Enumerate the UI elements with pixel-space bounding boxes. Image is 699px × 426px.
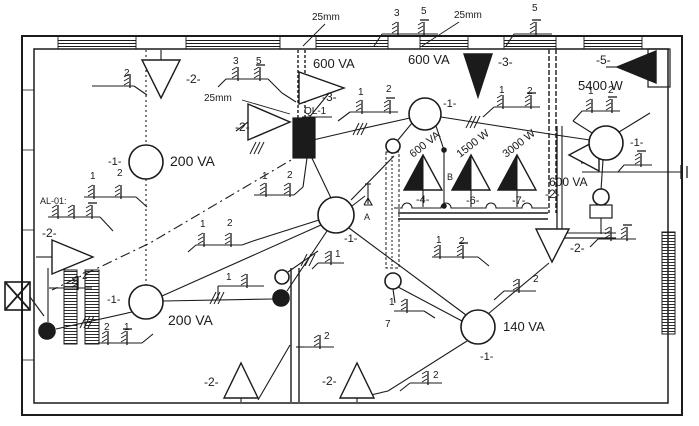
switch-hash <box>356 100 361 103</box>
switch-hash <box>384 100 389 103</box>
electrical-plan-page: 25mm3525mm5600 VA600 VA-3--3-QL-125mm-2-… <box>0 0 699 426</box>
switch-hash <box>241 282 246 285</box>
switch-hash <box>586 103 591 106</box>
switch-hash <box>254 71 259 74</box>
diagram-label: 140 VA <box>503 319 545 334</box>
diagram-label: 25mm <box>204 93 232 104</box>
switch-hash <box>260 187 265 190</box>
switch-hash <box>434 249 439 252</box>
switch-hash <box>422 375 427 378</box>
diagram-label: 25mm <box>454 10 482 21</box>
diagram-label: 2 <box>82 271 88 282</box>
diagram-label: 5400 W <box>578 78 624 93</box>
diagram-label: -5- <box>596 53 611 67</box>
diagram-label: -2- <box>322 374 337 388</box>
diagram-label: -1- <box>344 233 358 245</box>
switch-hash <box>606 103 611 106</box>
switch-hash <box>356 104 361 107</box>
wire <box>30 297 44 316</box>
switch-hash <box>621 227 626 230</box>
switch-hash <box>530 26 535 29</box>
small-outlet <box>386 139 400 153</box>
diagram-label: 1500 W <box>454 127 492 160</box>
lamp <box>129 145 163 179</box>
switch-hash <box>88 185 93 188</box>
switch-hash <box>314 335 319 338</box>
switch-hash <box>621 235 626 238</box>
switch-hash <box>422 371 427 374</box>
diagram-label: 1 <box>226 272 232 283</box>
switch-hash <box>418 22 423 25</box>
device-triangle-2 <box>52 240 93 274</box>
switch-hash <box>314 343 319 346</box>
switch-hook <box>590 239 598 247</box>
switch-hash <box>198 237 203 240</box>
wire <box>313 118 410 140</box>
switch-hash <box>635 161 640 164</box>
wire <box>441 117 590 140</box>
diagram-label: B <box>447 172 453 182</box>
switch-hash <box>635 157 640 160</box>
switch-hash <box>606 107 611 110</box>
switch-hash <box>401 307 406 310</box>
diagram-label: AL-01: <box>40 196 67 206</box>
switch-hash <box>68 205 73 208</box>
switch-hash <box>606 99 611 102</box>
switch-hash <box>102 335 107 338</box>
switch-hash <box>52 213 57 216</box>
switch-hash <box>225 241 230 244</box>
switch-hash <box>392 26 397 29</box>
switch-hash <box>86 209 91 212</box>
diagram-label: 1 <box>499 85 505 96</box>
switch-hash <box>260 183 265 186</box>
switch-hash <box>513 283 518 286</box>
switch-hash <box>497 103 502 106</box>
switch-hash <box>401 303 406 306</box>
switch-hash <box>198 233 203 236</box>
distribution-board-ql1 <box>293 118 315 158</box>
switch-hash <box>635 153 640 156</box>
wire <box>398 123 412 140</box>
diagram-label: -2- <box>570 241 585 255</box>
switch-hash <box>254 67 259 70</box>
device-box <box>590 205 612 218</box>
diagram-label: 1 <box>200 219 206 230</box>
switch-hash <box>457 249 462 252</box>
diagram-label: -4- <box>416 194 430 206</box>
diagram-label: 2 <box>287 170 293 181</box>
diagram-label: 2 <box>124 68 130 79</box>
switch-hook <box>242 241 253 245</box>
lamp <box>409 98 441 130</box>
diagram-label: 2 <box>227 218 233 229</box>
diagram-label: 7 <box>385 319 391 330</box>
switch-hook <box>188 245 196 252</box>
switch-hash <box>102 339 107 342</box>
switch-hash <box>586 107 591 110</box>
switch-hash <box>88 189 93 192</box>
small-outlet <box>385 273 401 289</box>
diagram-label: 5 <box>532 3 538 14</box>
diagram-label: 2 <box>433 370 439 381</box>
switch-hook <box>136 197 147 207</box>
switch-hash <box>68 213 73 216</box>
switch-hash <box>525 99 530 102</box>
diagram-label: 1 <box>124 322 130 333</box>
diagram-label: -3- <box>498 55 513 69</box>
lamp <box>589 126 623 160</box>
switch-hash <box>392 30 397 33</box>
diagram-label: 2 <box>608 85 614 96</box>
switch-hash <box>232 67 237 70</box>
switch-hash <box>254 75 259 78</box>
point-dot <box>442 204 446 208</box>
diagram-label: -2- <box>545 187 560 201</box>
wire <box>162 225 321 296</box>
switch-hook <box>424 311 435 318</box>
switch-hash <box>86 205 91 208</box>
diagram-label: 5 <box>421 6 427 17</box>
diagram-label: -1- <box>443 98 457 110</box>
wall-shaft <box>662 232 675 334</box>
diagram-label: -2- <box>204 375 219 389</box>
diagram-label: 1 <box>389 297 395 308</box>
switch-hook <box>100 217 113 231</box>
switch-hash <box>68 209 73 212</box>
switch-hook <box>573 111 582 121</box>
diagram-label: 1 <box>262 171 268 182</box>
device-triangle-2 <box>340 363 374 398</box>
diagram-label: -1- <box>480 351 494 363</box>
switch-hash <box>88 193 93 196</box>
junction-dot <box>273 290 289 306</box>
switch-hook <box>400 383 410 391</box>
switch-hash <box>401 299 406 302</box>
diagram-label: 1 <box>335 249 341 260</box>
switch-hash <box>325 251 330 254</box>
switch-hash <box>115 189 120 192</box>
switch-hash <box>586 99 591 102</box>
diagram-label: 1 <box>436 235 442 246</box>
diagram-label: -1- <box>107 294 121 306</box>
switch-hash <box>86 213 91 216</box>
switch-hash <box>434 253 439 256</box>
diagram-label: 600 VA <box>313 56 355 71</box>
diagram-label: 2 <box>527 86 533 97</box>
switch-hash <box>384 104 389 107</box>
diagram-label: 2 <box>386 84 392 95</box>
switch-hash <box>418 30 423 33</box>
diagram-label: -6- <box>466 195 480 207</box>
lamp <box>129 285 163 319</box>
switch-hash <box>121 339 126 342</box>
diagram-label: -2- <box>235 120 250 134</box>
small-outlet <box>593 189 609 205</box>
switch-hook <box>218 79 226 87</box>
switch-hash <box>198 241 203 244</box>
diagram-label: 200 VA <box>168 312 214 328</box>
diagram-label: 600 VA <box>407 129 443 161</box>
diagram-label: 5 <box>256 56 262 67</box>
switch-hash <box>418 26 423 29</box>
switch-hook <box>483 107 494 117</box>
switch-hash <box>241 274 246 277</box>
switch-hash <box>121 335 126 338</box>
diagram-label: -2- <box>186 72 201 86</box>
switch-hash <box>241 278 246 281</box>
device-triangle-2 <box>224 363 258 398</box>
switch-hash <box>356 108 361 111</box>
switch-hook <box>338 112 350 121</box>
switch-hash <box>225 237 230 240</box>
switch-hash <box>124 82 129 85</box>
device-triangle-2 <box>248 104 290 140</box>
device-triangle-4-fill <box>404 155 423 190</box>
wire <box>258 345 290 400</box>
diagram-label: 3 <box>394 8 400 19</box>
switch-hook <box>494 291 504 300</box>
wire <box>573 121 592 133</box>
diagram-label: 2 <box>324 331 330 342</box>
diagram-label: 1 <box>588 86 594 97</box>
switch-hook <box>142 334 153 343</box>
switch-hash <box>325 255 330 258</box>
switch-hook <box>268 79 282 93</box>
switch-hash <box>497 99 502 102</box>
switch-hook <box>478 257 489 266</box>
switch-hash <box>392 22 397 25</box>
junction-dot <box>39 323 55 339</box>
diagram-label: QL-1 <box>304 106 327 117</box>
switch-hook <box>294 187 303 195</box>
switch-hash <box>384 108 389 111</box>
switch-hash <box>422 379 427 382</box>
diagram-label: -3- <box>322 90 337 104</box>
switch-hash <box>605 227 610 230</box>
wiring-diagram: 25mm3525mm5600 VA600 VA-3--3-QL-125mm-2-… <box>0 0 699 426</box>
diagram-label: 25mm <box>312 12 340 23</box>
wire <box>303 158 307 187</box>
switch-hash <box>530 22 535 25</box>
wire <box>351 156 394 200</box>
switch-hash <box>325 259 330 262</box>
switch-hash <box>52 209 57 212</box>
device-triangle-2 <box>142 60 180 98</box>
diagram-label: 3 <box>233 56 239 67</box>
switch-hash <box>232 71 237 74</box>
diagram-label: 2 <box>459 236 465 247</box>
diagram-label: A <box>364 212 370 222</box>
switch-hash <box>314 339 319 342</box>
point-dot <box>442 148 446 152</box>
wire <box>309 152 331 198</box>
switch-hash <box>284 191 289 194</box>
wire <box>282 93 296 102</box>
switch-hash <box>115 185 120 188</box>
switch-hash <box>284 183 289 186</box>
switch-hash <box>284 187 289 190</box>
diagram-label: 2 <box>104 322 110 333</box>
switch-hash <box>525 103 530 106</box>
wire <box>362 341 467 397</box>
switch-hash <box>513 279 518 282</box>
switch-hash <box>225 233 230 236</box>
diagram-label: -7- <box>512 195 526 207</box>
switch-hook <box>312 263 318 269</box>
switch-hash <box>621 231 626 234</box>
wire <box>601 160 603 190</box>
switch-hash <box>457 253 462 256</box>
diagram-label: 3000 W <box>500 127 538 160</box>
small-outlet <box>275 270 289 284</box>
lamp <box>461 310 495 344</box>
diagram-label: -1- <box>630 137 644 149</box>
diagram-label: 2 <box>533 274 539 285</box>
switch-hook <box>134 86 147 95</box>
wire <box>163 299 273 301</box>
switch-hash <box>530 30 535 33</box>
switch-hash <box>232 75 237 78</box>
diagram-label: 2 <box>117 168 123 179</box>
device-triangle-3-filled <box>464 54 492 97</box>
diagram-label: 1 <box>358 87 364 98</box>
diagram-label: -1- <box>108 156 122 168</box>
device-triangle-5-filled <box>617 51 656 83</box>
diagram-label: 200 VA <box>170 153 216 169</box>
diagram-label: 600 VA <box>408 52 450 67</box>
diagram-label: 1 <box>90 171 96 182</box>
lamp <box>318 197 354 233</box>
switch-hash <box>260 191 265 194</box>
wire <box>619 113 650 132</box>
switch-hash <box>115 193 120 196</box>
device-triangle-2 <box>536 229 569 262</box>
switch-hook <box>618 165 624 172</box>
diagram-label: -2- <box>42 226 57 240</box>
